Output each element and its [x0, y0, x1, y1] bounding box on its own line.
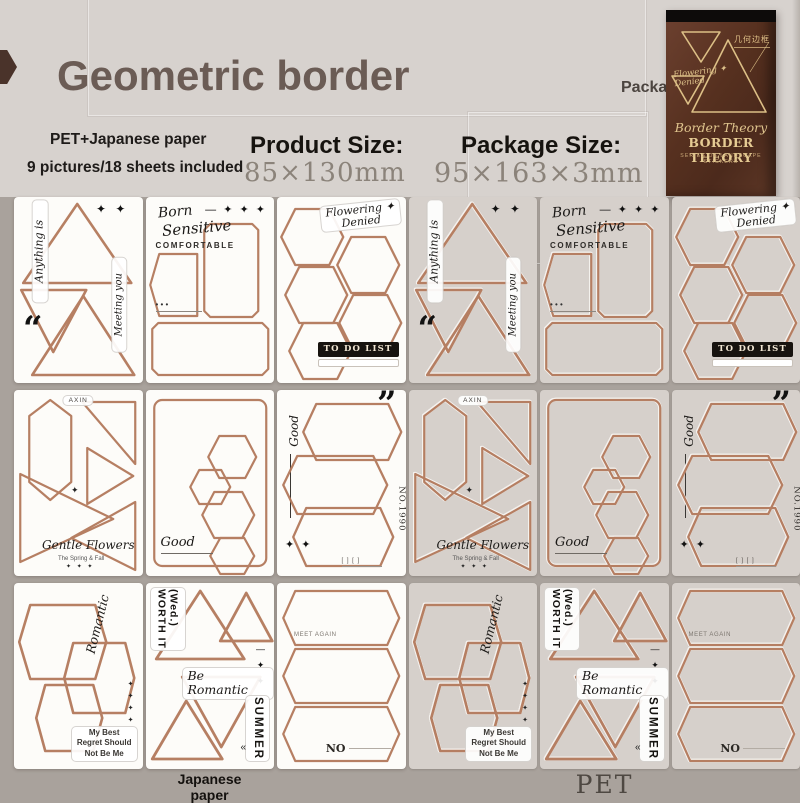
page-title: Geometric border	[57, 52, 409, 100]
sheet-label: TO DO LIST	[712, 342, 793, 357]
count-line: 9 pictures/18 sheets included	[27, 159, 243, 177]
sheet-shapes	[277, 583, 406, 769]
product-page: { "header": { "title": "Geometric border…	[0, 0, 800, 800]
sheet-label: Gentle Flowers	[42, 539, 135, 553]
sticker-sheet-d8-paper: (Wed.) WORTH IT— ✦ ✦ ✦Be RomanticSUMMER«	[146, 583, 275, 769]
sheet-label: My Best Regret Should Not Be Me	[465, 726, 532, 762]
sheet-label: My Best Regret Should Not Be Me	[71, 726, 138, 762]
sheet-label: NO.1990	[396, 486, 406, 531]
sticker-sheet-d2-pet: BornSensitiveCOMFORTABLE— ✦ ✦ ✦• • •	[540, 197, 669, 383]
sheet-label: MEET AGAIN	[689, 632, 732, 639]
sheet-label: ”	[377, 394, 397, 414]
product-size-label: Product Size:	[250, 132, 403, 160]
sheet-label: — ✦ ✦ ✦	[600, 204, 662, 217]
sheet-label: ✦ ✦	[491, 203, 523, 217]
sheet-label: SUMMER	[639, 695, 664, 762]
sticker-sheet-d7-paper: Romantic✦ ✦ ✦ ✦My Best Regret Should Not…	[14, 583, 143, 769]
sheet-label: [ ] [ ]	[736, 558, 776, 567]
package-size-label: Package Size:	[461, 132, 621, 160]
sheet-label: [ ] [ ]	[342, 558, 382, 567]
sticker-sheet-d9-paper: MEET AGAINNO	[277, 583, 406, 769]
sheet-label: Good	[288, 401, 302, 461]
sticker-sheet-d6-paper: Good”NO.1990✦ ✦[ ] [ ]	[277, 390, 406, 576]
package-cn-title: 几何边框	[734, 34, 770, 48]
sheet-label: NO	[326, 743, 391, 756]
sheet-shapes	[672, 583, 800, 769]
sheet-label: TO DO LIST	[318, 342, 399, 357]
sheet-label: AXIN	[63, 395, 94, 406]
sheet-label: Anything is	[32, 199, 49, 303]
group-label-japanese-paper: Japanese paper	[145, 771, 274, 803]
sticker-sheet-d4-pet: AXIN✦Gentle FlowersThe Spring & Fall✦ ✦ …	[409, 390, 538, 576]
sheet-label: Born	[157, 203, 193, 222]
sheet-label: Good	[683, 401, 697, 461]
sheet-label: NO.1990	[790, 486, 800, 531]
sheet-label: ✦ ✦	[96, 203, 128, 217]
sheet-label: The Spring & Fall	[453, 556, 499, 563]
sticker-sheet-d2-paper: BornSensitiveCOMFORTABLE— ✦ ✦ ✦• • •	[146, 197, 275, 383]
material-line: PET+Japanese paper	[50, 131, 206, 149]
package-box-image: 几何边框 Flowering ✦ Denied Border Theory BO…	[666, 10, 776, 196]
sheet-label: — ✦ ✦ ✦	[205, 204, 267, 217]
package-script-title: Border Theory	[666, 120, 776, 135]
sticker-sheet-d6-pet: Good”NO.1990✦ ✦[ ] [ ]	[672, 390, 800, 576]
sticker-sheet-d7-pet: Romantic✦ ✦ ✦ ✦My Best Regret Should Not…	[409, 583, 538, 769]
sticker-sheet-d8-pet: (Wed.) WORTH IT— ✦ ✦ ✦Be RomanticSUMMER«	[540, 583, 669, 769]
sticker-sheet-d1-paper: Anything is✦ ✦Meeting you“	[14, 197, 143, 383]
sheet-label: (Wed.) WORTH IT	[544, 587, 580, 651]
sticker-sheet-d9-pet: MEET AGAINNO	[672, 583, 800, 769]
sheet-label: Good	[555, 536, 607, 554]
sheet-label: (Wed.) WORTH IT	[150, 587, 186, 651]
sheets-grid: Anything is✦ ✦Meeting you“BornSensitiveC…	[0, 197, 800, 769]
sheet-label: “	[23, 319, 43, 339]
sheet-label: Anything is	[426, 199, 443, 303]
sheet-label: Gentle Flowers	[437, 539, 530, 553]
sheet-label: COMFORTABLE	[156, 241, 235, 250]
sheet-label: “	[418, 319, 438, 339]
bookmark-arrow-icon	[0, 50, 17, 84]
package-size-value: 95×163×3mm	[434, 158, 644, 189]
sticker-sheet-d3-pet: Flowering ✦ DeniedTO DO LIST	[672, 197, 800, 383]
package-top-strip	[666, 10, 776, 22]
sheet-label: Good	[161, 536, 213, 554]
sheet-label: ✦ ✦ ✦ ✦	[128, 679, 134, 727]
sheet-label: ✦ ✦ ✦	[461, 564, 489, 571]
sheet-label: • • •	[156, 300, 202, 312]
sheet-label: COMFORTABLE	[550, 241, 629, 250]
group-label-pet: PET	[540, 770, 669, 799]
sheet-label: NO	[720, 743, 785, 756]
package-subtitle: SERIES OF LANDSCAPE STICKERS	[666, 153, 776, 165]
sheet-label: Meeting you	[111, 257, 127, 353]
sheet-label: • • •	[550, 300, 596, 312]
sheet-label: «	[635, 742, 641, 754]
sheet-label: ✦ ✦ ✦	[66, 564, 94, 571]
sheet-label: ✦ ✦ ✦ ✦	[522, 679, 528, 727]
sheet-label: «	[240, 742, 246, 754]
page-edge-shadow	[792, 0, 800, 197]
sheet-label: ✦	[466, 485, 474, 495]
sheet-label: Meeting you	[505, 257, 521, 353]
sheet-label: MEET AGAIN	[294, 632, 337, 639]
sheet-label: ✦	[71, 485, 79, 495]
sheet-label: AXIN	[457, 395, 488, 406]
product-size-value: 85×130mm	[244, 158, 406, 188]
sheet-label: SUMMER	[245, 695, 270, 762]
sheet-label: ”	[771, 394, 791, 414]
sticker-sheet-d3-paper: Flowering ✦ DeniedTO DO LIST	[277, 197, 406, 383]
sheet-label: ✦ ✦	[680, 539, 708, 552]
sheet-label: The Spring & Fall	[58, 556, 104, 563]
sticker-sheet-d5-pet: Good	[540, 390, 669, 576]
sheet-label: ✦ ✦	[285, 539, 313, 552]
sticker-sheet-d5-paper: Good	[146, 390, 275, 576]
sticker-sheet-d1-pet: Anything is✦ ✦Meeting you“	[409, 197, 538, 383]
header: Geometric border PET+Japanese paper 9 pi…	[0, 0, 800, 197]
sticker-sheet-d4-paper: AXIN✦Gentle FlowersThe Spring & Fall✦ ✦ …	[14, 390, 143, 576]
